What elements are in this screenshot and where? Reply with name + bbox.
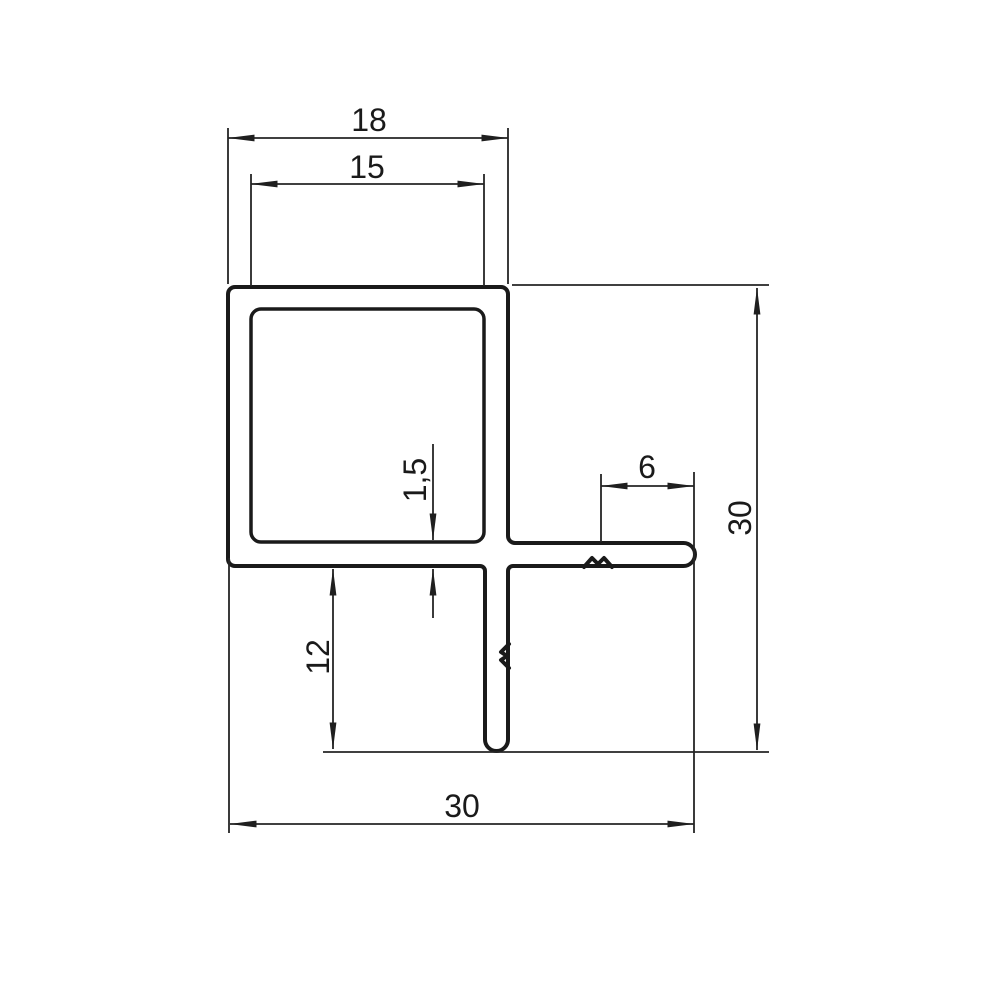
dimension-lines	[228, 128, 769, 833]
dimension-label-outer-width: 18	[351, 102, 387, 138]
profile-inner-hole	[251, 309, 484, 542]
cad-cross-section-drawing: 18 15 6 30 1,5 12 30	[0, 0, 1000, 1000]
dimension-label-overall-width: 30	[444, 788, 480, 824]
dimension-label-overall-height: 30	[722, 500, 758, 536]
dimension-label-leg-length: 12	[300, 639, 336, 675]
profile-outer-outline	[228, 287, 695, 751]
drawing-canvas: 18 15 6 30 1,5 12 30	[0, 0, 1000, 1000]
dimension-labels: 18 15 6 30 1,5 12 30	[300, 102, 758, 824]
dimension-label-wall-thickness: 1,5	[397, 458, 433, 502]
break-mark-leg	[501, 644, 509, 668]
profile-geometry	[228, 287, 695, 751]
dimension-label-flange-tail: 6	[638, 449, 656, 485]
dimension-label-inner-width: 15	[349, 149, 385, 185]
